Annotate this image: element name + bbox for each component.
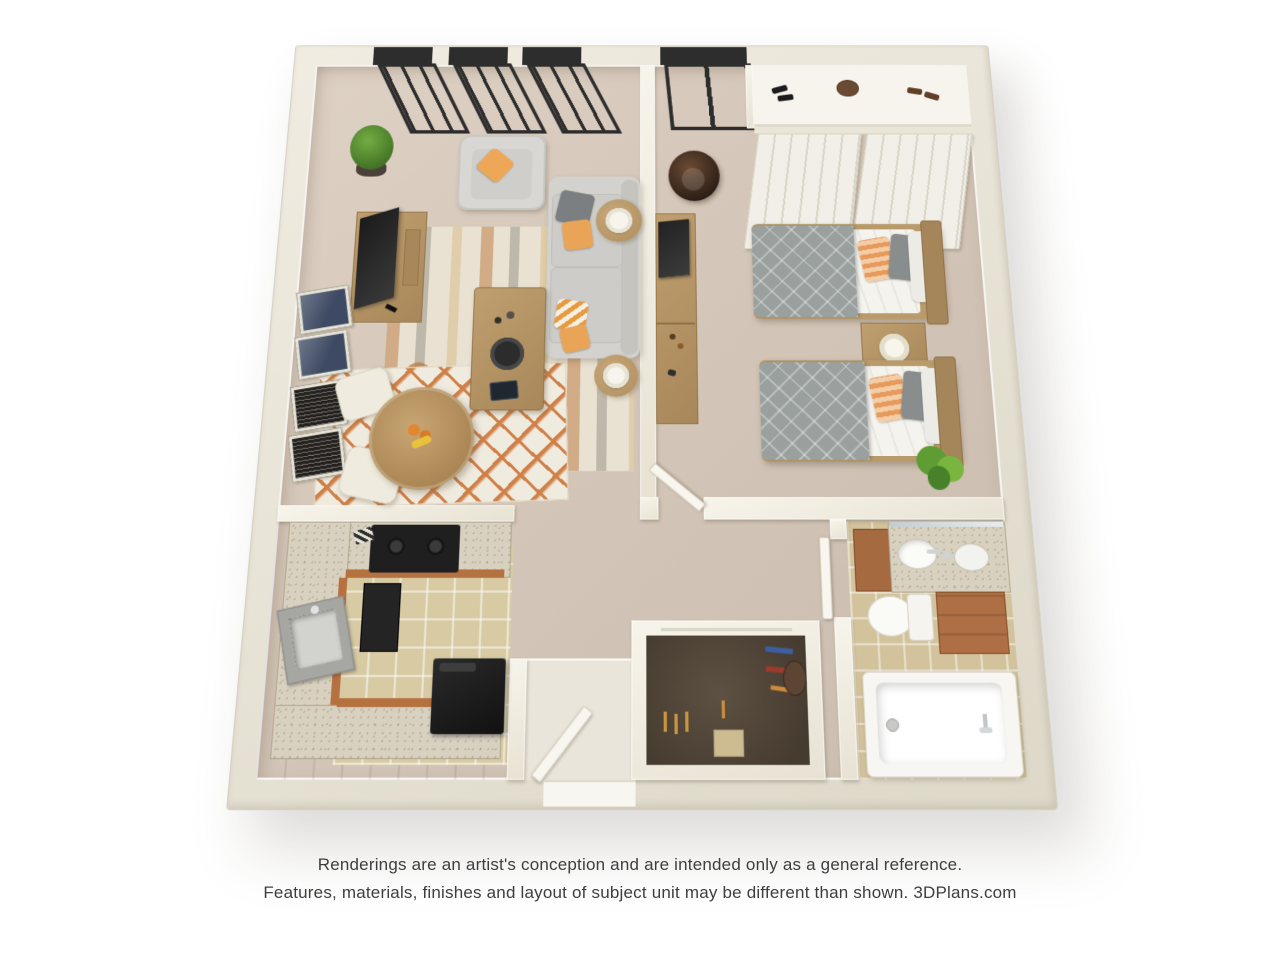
disclaimer-line-2-text: Features, materials, finishes and layout… [263, 883, 908, 902]
closet-header [754, 127, 972, 134]
disclaimer: Renderings are an artist's conception an… [0, 851, 1280, 907]
table-lamp [603, 363, 629, 388]
cooktop [369, 525, 461, 573]
bathroom-wall-segment [830, 520, 847, 540]
living-window-frame [373, 47, 433, 65]
decor-item [670, 334, 676, 340]
toilet-tank [906, 594, 934, 641]
bedroom-tv [658, 219, 689, 278]
wall-art-frame [295, 330, 351, 380]
bedroom-bathroom-wall [704, 497, 1005, 519]
orange-pillow [561, 219, 593, 251]
floor-plan-scene [264, 1, 1018, 783]
vanity-faucet [941, 554, 954, 558]
plant-foliage [349, 125, 395, 170]
table-lamp [605, 208, 632, 233]
bedroom-wall-segment [640, 497, 659, 519]
bedroom-window-frame [660, 47, 747, 65]
living-window-frame [448, 47, 508, 65]
gray-quilt [751, 226, 858, 317]
wall-art-frame [289, 428, 346, 482]
kitchen-sink-basin [289, 608, 343, 669]
disclaimer-line-2: Features, materials, finishes and layout… [0, 879, 1280, 907]
dresser-split [656, 323, 695, 325]
entry-doorway [543, 780, 635, 807]
lounge-chair-seat [682, 168, 705, 191]
hanging-clothes-orange [674, 714, 677, 734]
appliance-handle [439, 663, 476, 672]
vanity-sink [897, 539, 938, 569]
wall-art-frame [297, 285, 352, 334]
closet-storage-box [713, 730, 744, 757]
gray-quilt [759, 362, 870, 460]
flat-tv [354, 207, 399, 309]
living-bedroom-wall [640, 65, 656, 502]
hanging-clothes-orange [664, 712, 667, 732]
bathtub-faucet [979, 727, 992, 733]
closet-opening-rail [661, 628, 792, 631]
bathroom-cabinet [935, 592, 1009, 654]
decor-item [678, 343, 684, 349]
hanging-clothes-orange [722, 700, 726, 718]
vanity-faucet [926, 550, 941, 554]
vanity-mirror-edge [890, 522, 1004, 527]
tablet [489, 380, 518, 401]
living-window-frame [522, 47, 581, 65]
floor-plan-3d [226, 45, 1055, 807]
kitchen-entry-wall [507, 658, 528, 779]
disclaimer-line-1: Renderings are an artist's conception an… [0, 851, 1280, 879]
living-plant [346, 123, 399, 180]
bathtub-drain [886, 718, 900, 732]
hanging-clothes-orange [685, 712, 688, 732]
kitchen-wall [277, 505, 515, 521]
brown-bag [836, 80, 859, 97]
brand-name: 3DPlans.com [913, 883, 1016, 902]
tv-console-step [402, 229, 421, 285]
wall-oven [359, 583, 401, 652]
